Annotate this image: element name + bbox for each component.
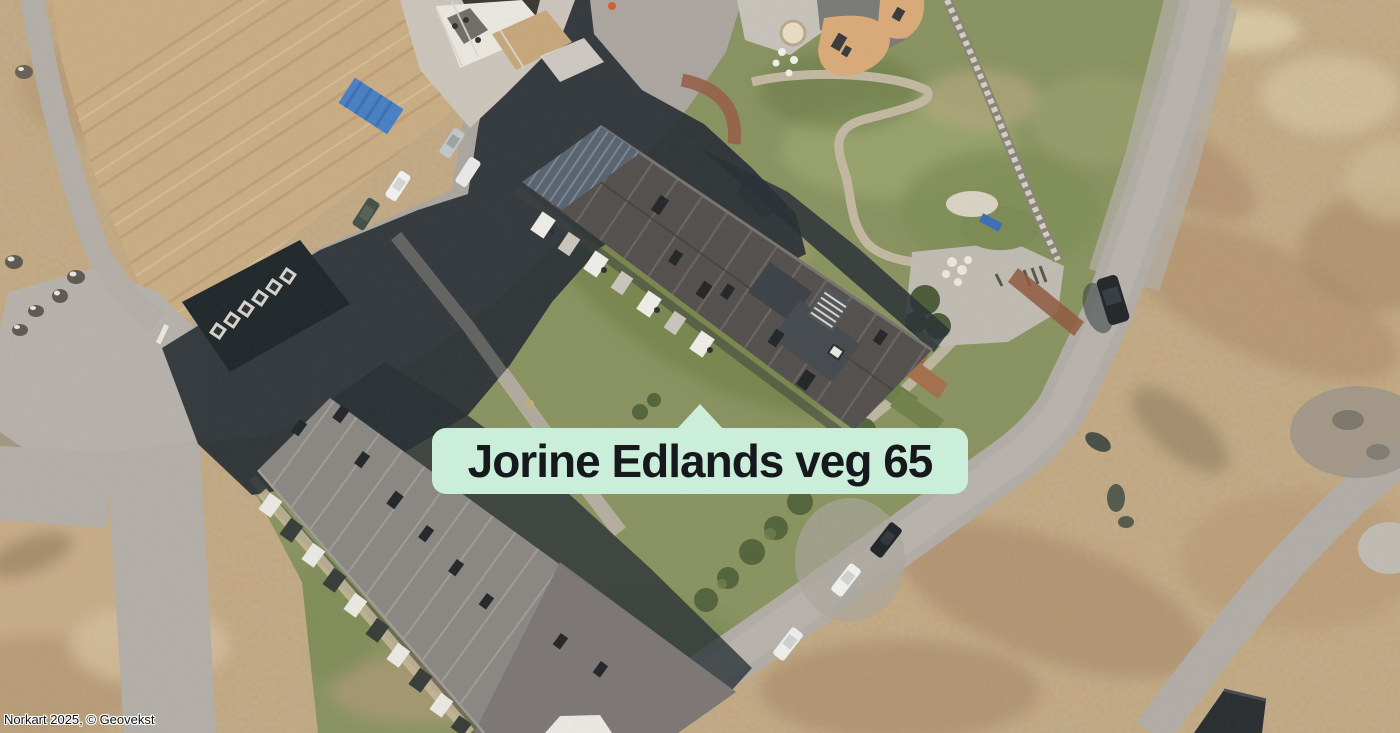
photo-grain xyxy=(0,0,1400,733)
map-attribution: Norkart 2025, © Geovekst xyxy=(4,712,154,727)
address-marker-label[interactable]: Jorine Edlands veg 65 xyxy=(432,428,968,494)
map-canvas[interactable]: . xyxy=(0,0,1400,733)
aerial-imagery: . xyxy=(0,0,1400,733)
